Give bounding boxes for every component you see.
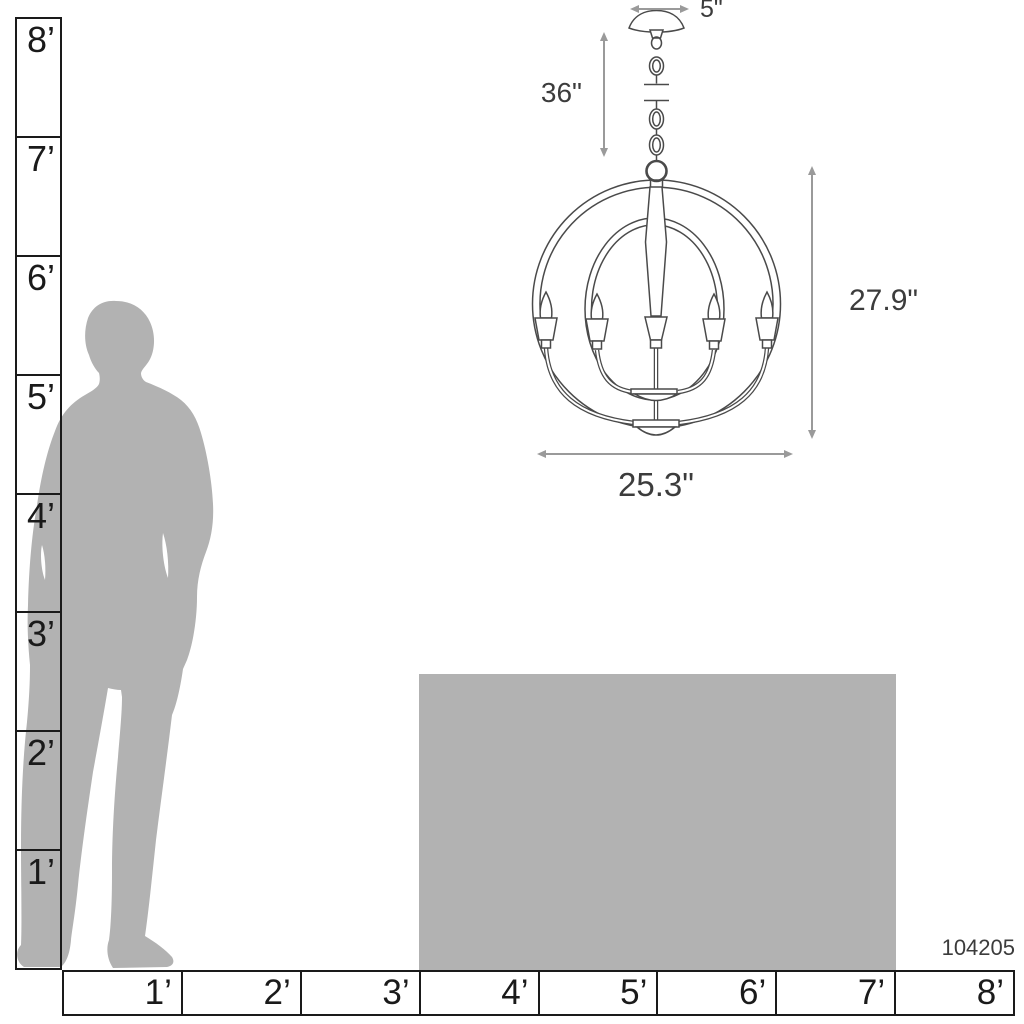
h-ruler-cell: 6’ — [658, 972, 777, 1014]
v-ruler-cell: 4’ — [17, 495, 60, 614]
h-ruler-cell: 2’ — [183, 972, 302, 1014]
h-ruler-cell: 3’ — [302, 972, 421, 1014]
dimension-arrows — [537, 5, 816, 458]
hanging-chain — [644, 37, 669, 187]
ruler-label: 5’ — [27, 376, 55, 417]
h-ruler-cell: 8’ — [896, 972, 1013, 1014]
candle-arms — [546, 347, 767, 423]
dimension-label-chain-length: 36" — [520, 79, 582, 107]
ruler-label: 7’ — [858, 973, 885, 1013]
ruler-label: 3’ — [27, 613, 55, 654]
orb-inner-ring — [585, 218, 724, 400]
size-comparison-diagram: 8’ 7’ 6’ 5’ 4’ 3’ 2’ 1’ 1’ 2’ 3’ 4’ 5’ 6… — [0, 0, 1024, 1024]
hand-highlight-right — [162, 533, 168, 578]
horizontal-ruler: 1’ 2’ 3’ 4’ 5’ 6’ 7’ 8’ — [62, 970, 1015, 1016]
dimension-label-canopy-width: 5" — [700, 0, 723, 22]
chandelier-drawing — [533, 11, 781, 436]
dimension-label-fixture-height: 27.9" — [849, 286, 918, 316]
ruler-label: 8’ — [977, 973, 1004, 1013]
v-ruler-cell: 5’ — [17, 376, 60, 495]
h-ruler-cell: 4’ — [421, 972, 540, 1014]
ruler-label: 3’ — [382, 973, 409, 1013]
ruler-label: 5’ — [620, 973, 647, 1013]
ruler-label: 6’ — [27, 257, 55, 298]
v-ruler-cell: 2’ — [17, 732, 60, 851]
ruler-label: 1’ — [145, 973, 172, 1013]
ruler-label: 8’ — [27, 19, 55, 60]
vertical-ruler: 8’ 7’ 6’ 5’ 4’ 3’ 2’ 1’ — [15, 17, 62, 970]
ruler-label: 2’ — [264, 973, 291, 1013]
h-ruler-cell: 1’ — [64, 972, 183, 1014]
ruler-label: 1’ — [27, 851, 55, 892]
ruler-label: 6’ — [739, 973, 766, 1013]
table-block — [419, 674, 896, 970]
v-ruler-cell: 8’ — [17, 19, 60, 138]
product-code: 104205 — [895, 937, 1015, 959]
h-ruler-cell: 7’ — [777, 972, 896, 1014]
ruler-label: 4’ — [27, 495, 55, 536]
chain-length-arrow — [600, 32, 608, 157]
center-spike — [645, 187, 667, 348]
bottom-hubs — [631, 389, 679, 435]
ruler-label: 2’ — [27, 732, 55, 773]
orb-outer-ring — [533, 180, 781, 428]
dimension-label-fixture-width: 25.3" — [596, 468, 716, 501]
v-ruler-cell: 7’ — [17, 138, 60, 257]
ruler-label: 7’ — [27, 138, 55, 179]
h-ruler-cell: 5’ — [540, 972, 659, 1014]
ruler-label: 4’ — [501, 973, 528, 1013]
candles — [535, 292, 778, 349]
v-ruler-cell: 3’ — [17, 613, 60, 732]
v-ruler-cell: 1’ — [17, 851, 60, 968]
fixture-width-arrow — [537, 450, 793, 458]
ceiling-canopy — [629, 11, 684, 39]
fixture-height-arrow — [808, 166, 816, 439]
v-ruler-cell: 6’ — [17, 257, 60, 376]
canopy-width-arrow — [630, 5, 689, 13]
